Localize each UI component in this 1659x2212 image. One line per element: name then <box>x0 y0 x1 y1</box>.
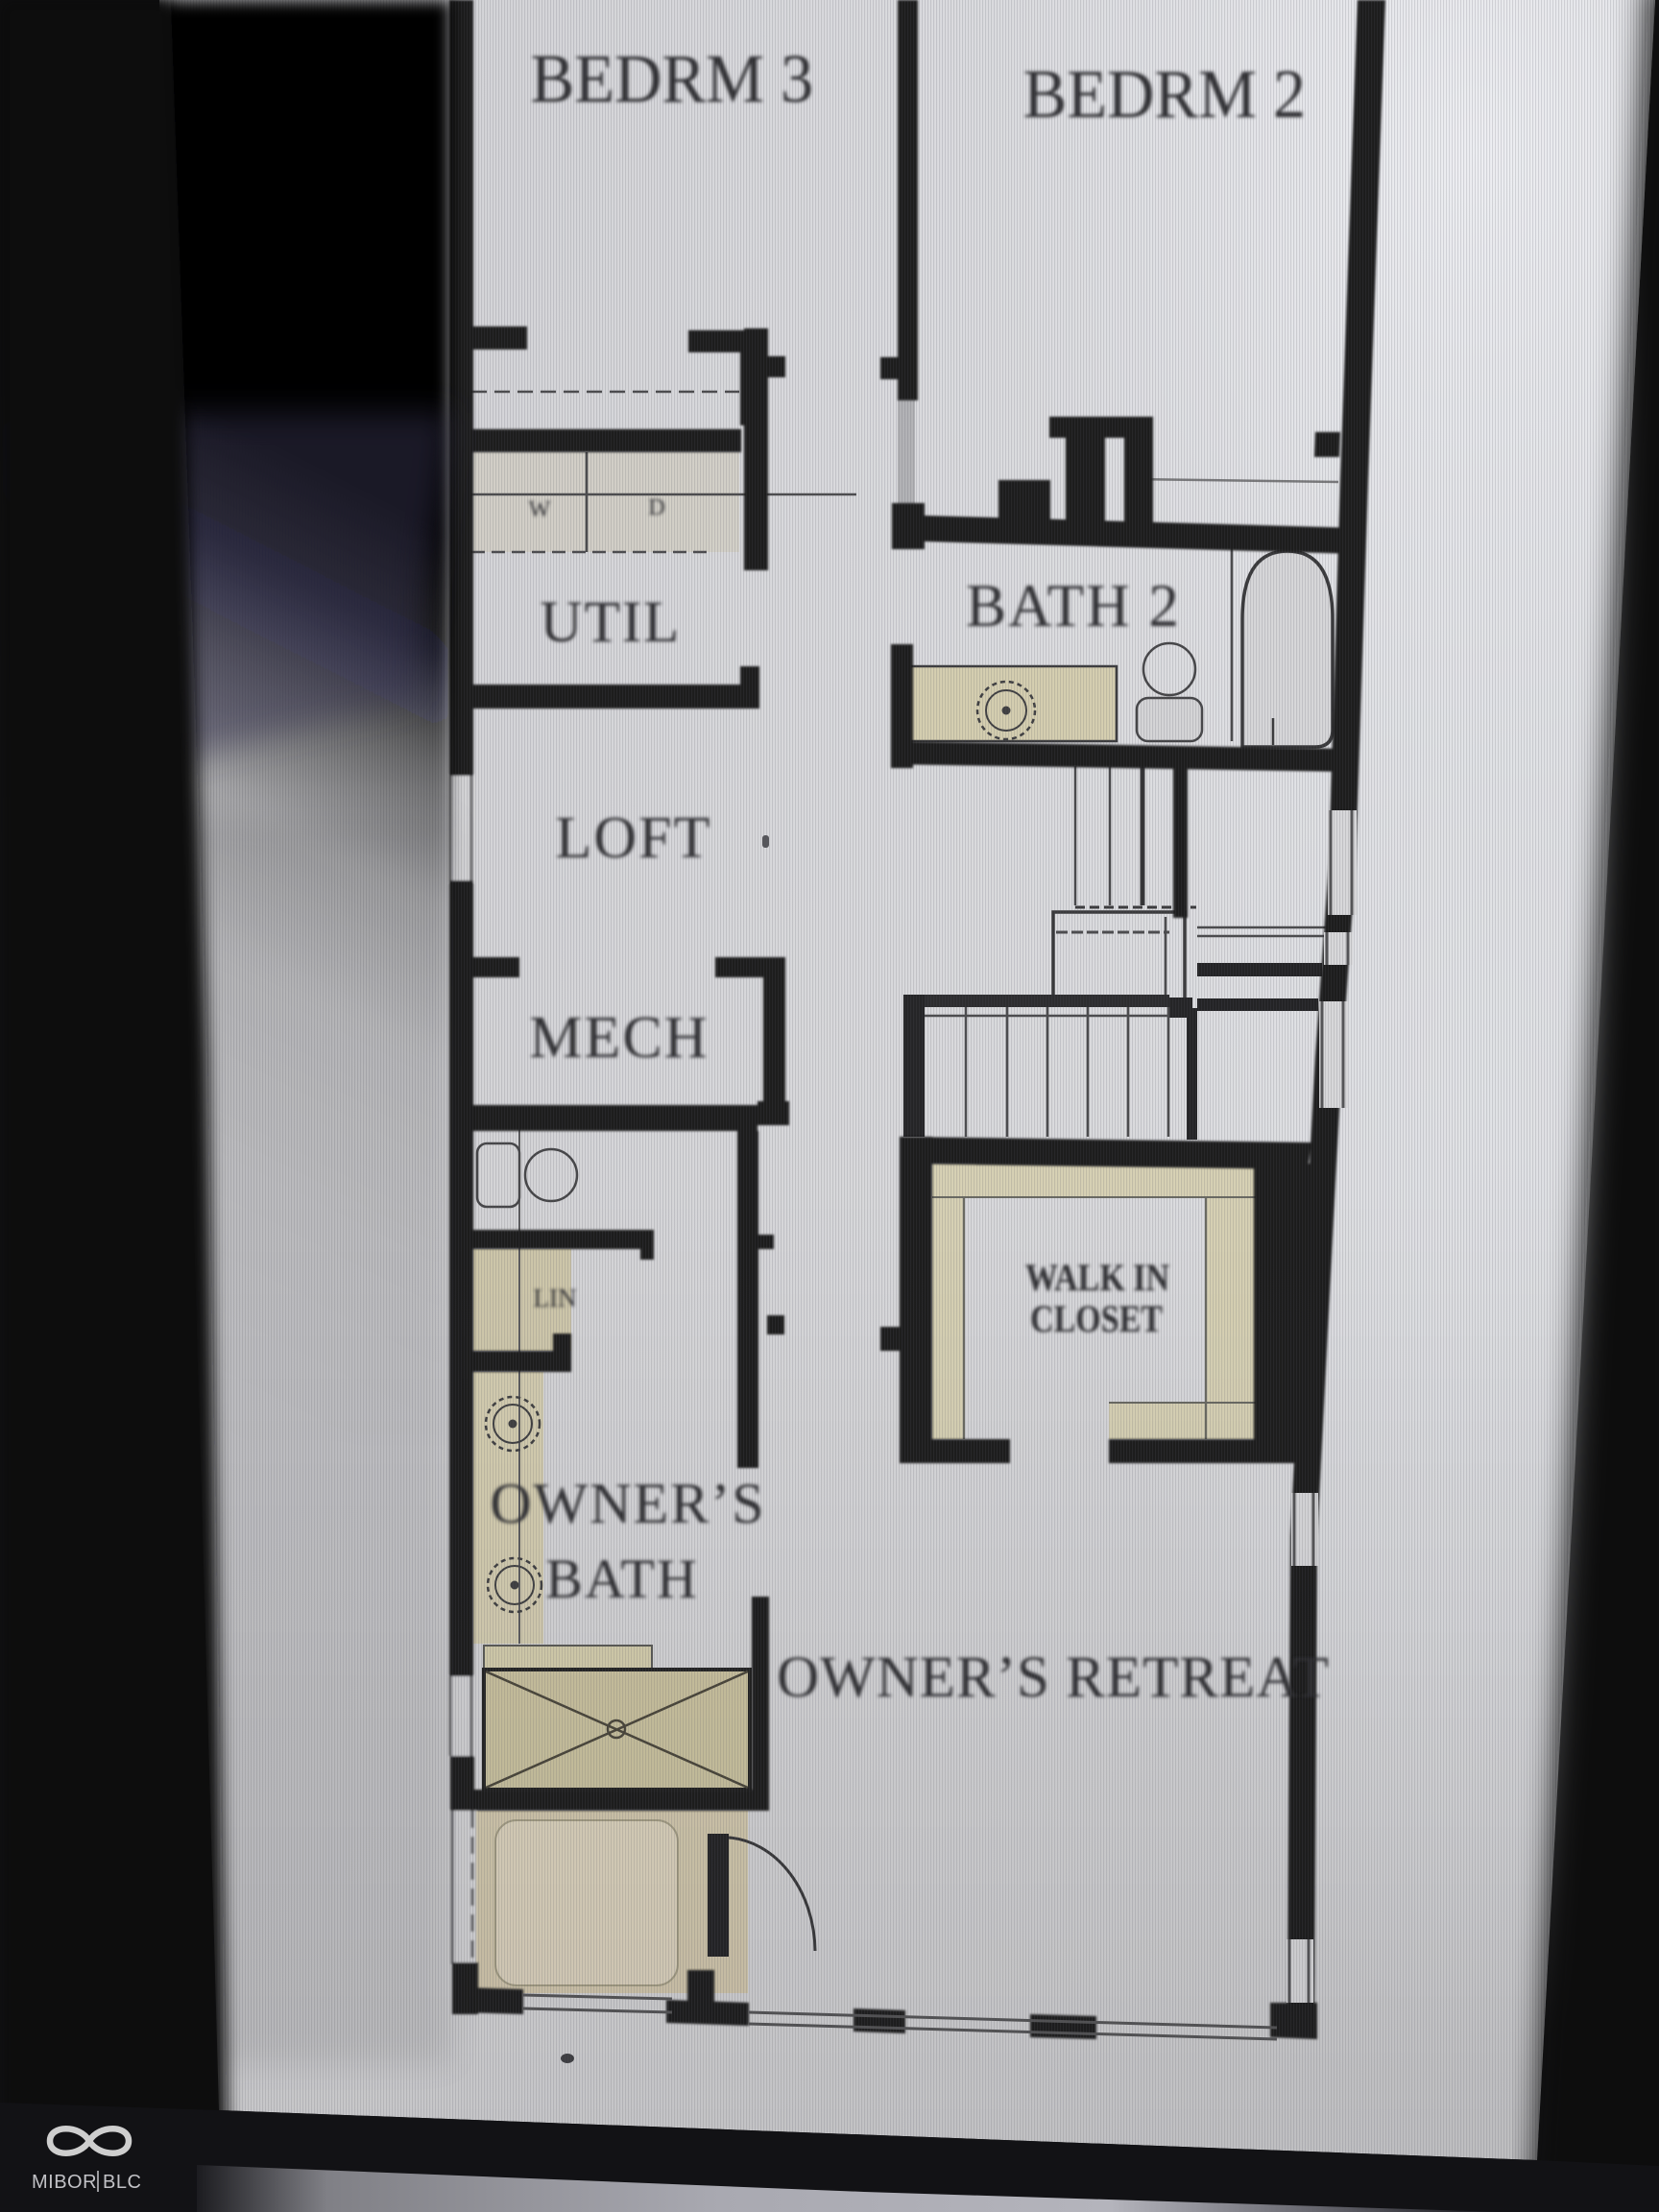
svg-text:BLC: BLC <box>103 2172 141 2193</box>
svg-text:MIBOR: MIBOR <box>32 2172 97 2193</box>
